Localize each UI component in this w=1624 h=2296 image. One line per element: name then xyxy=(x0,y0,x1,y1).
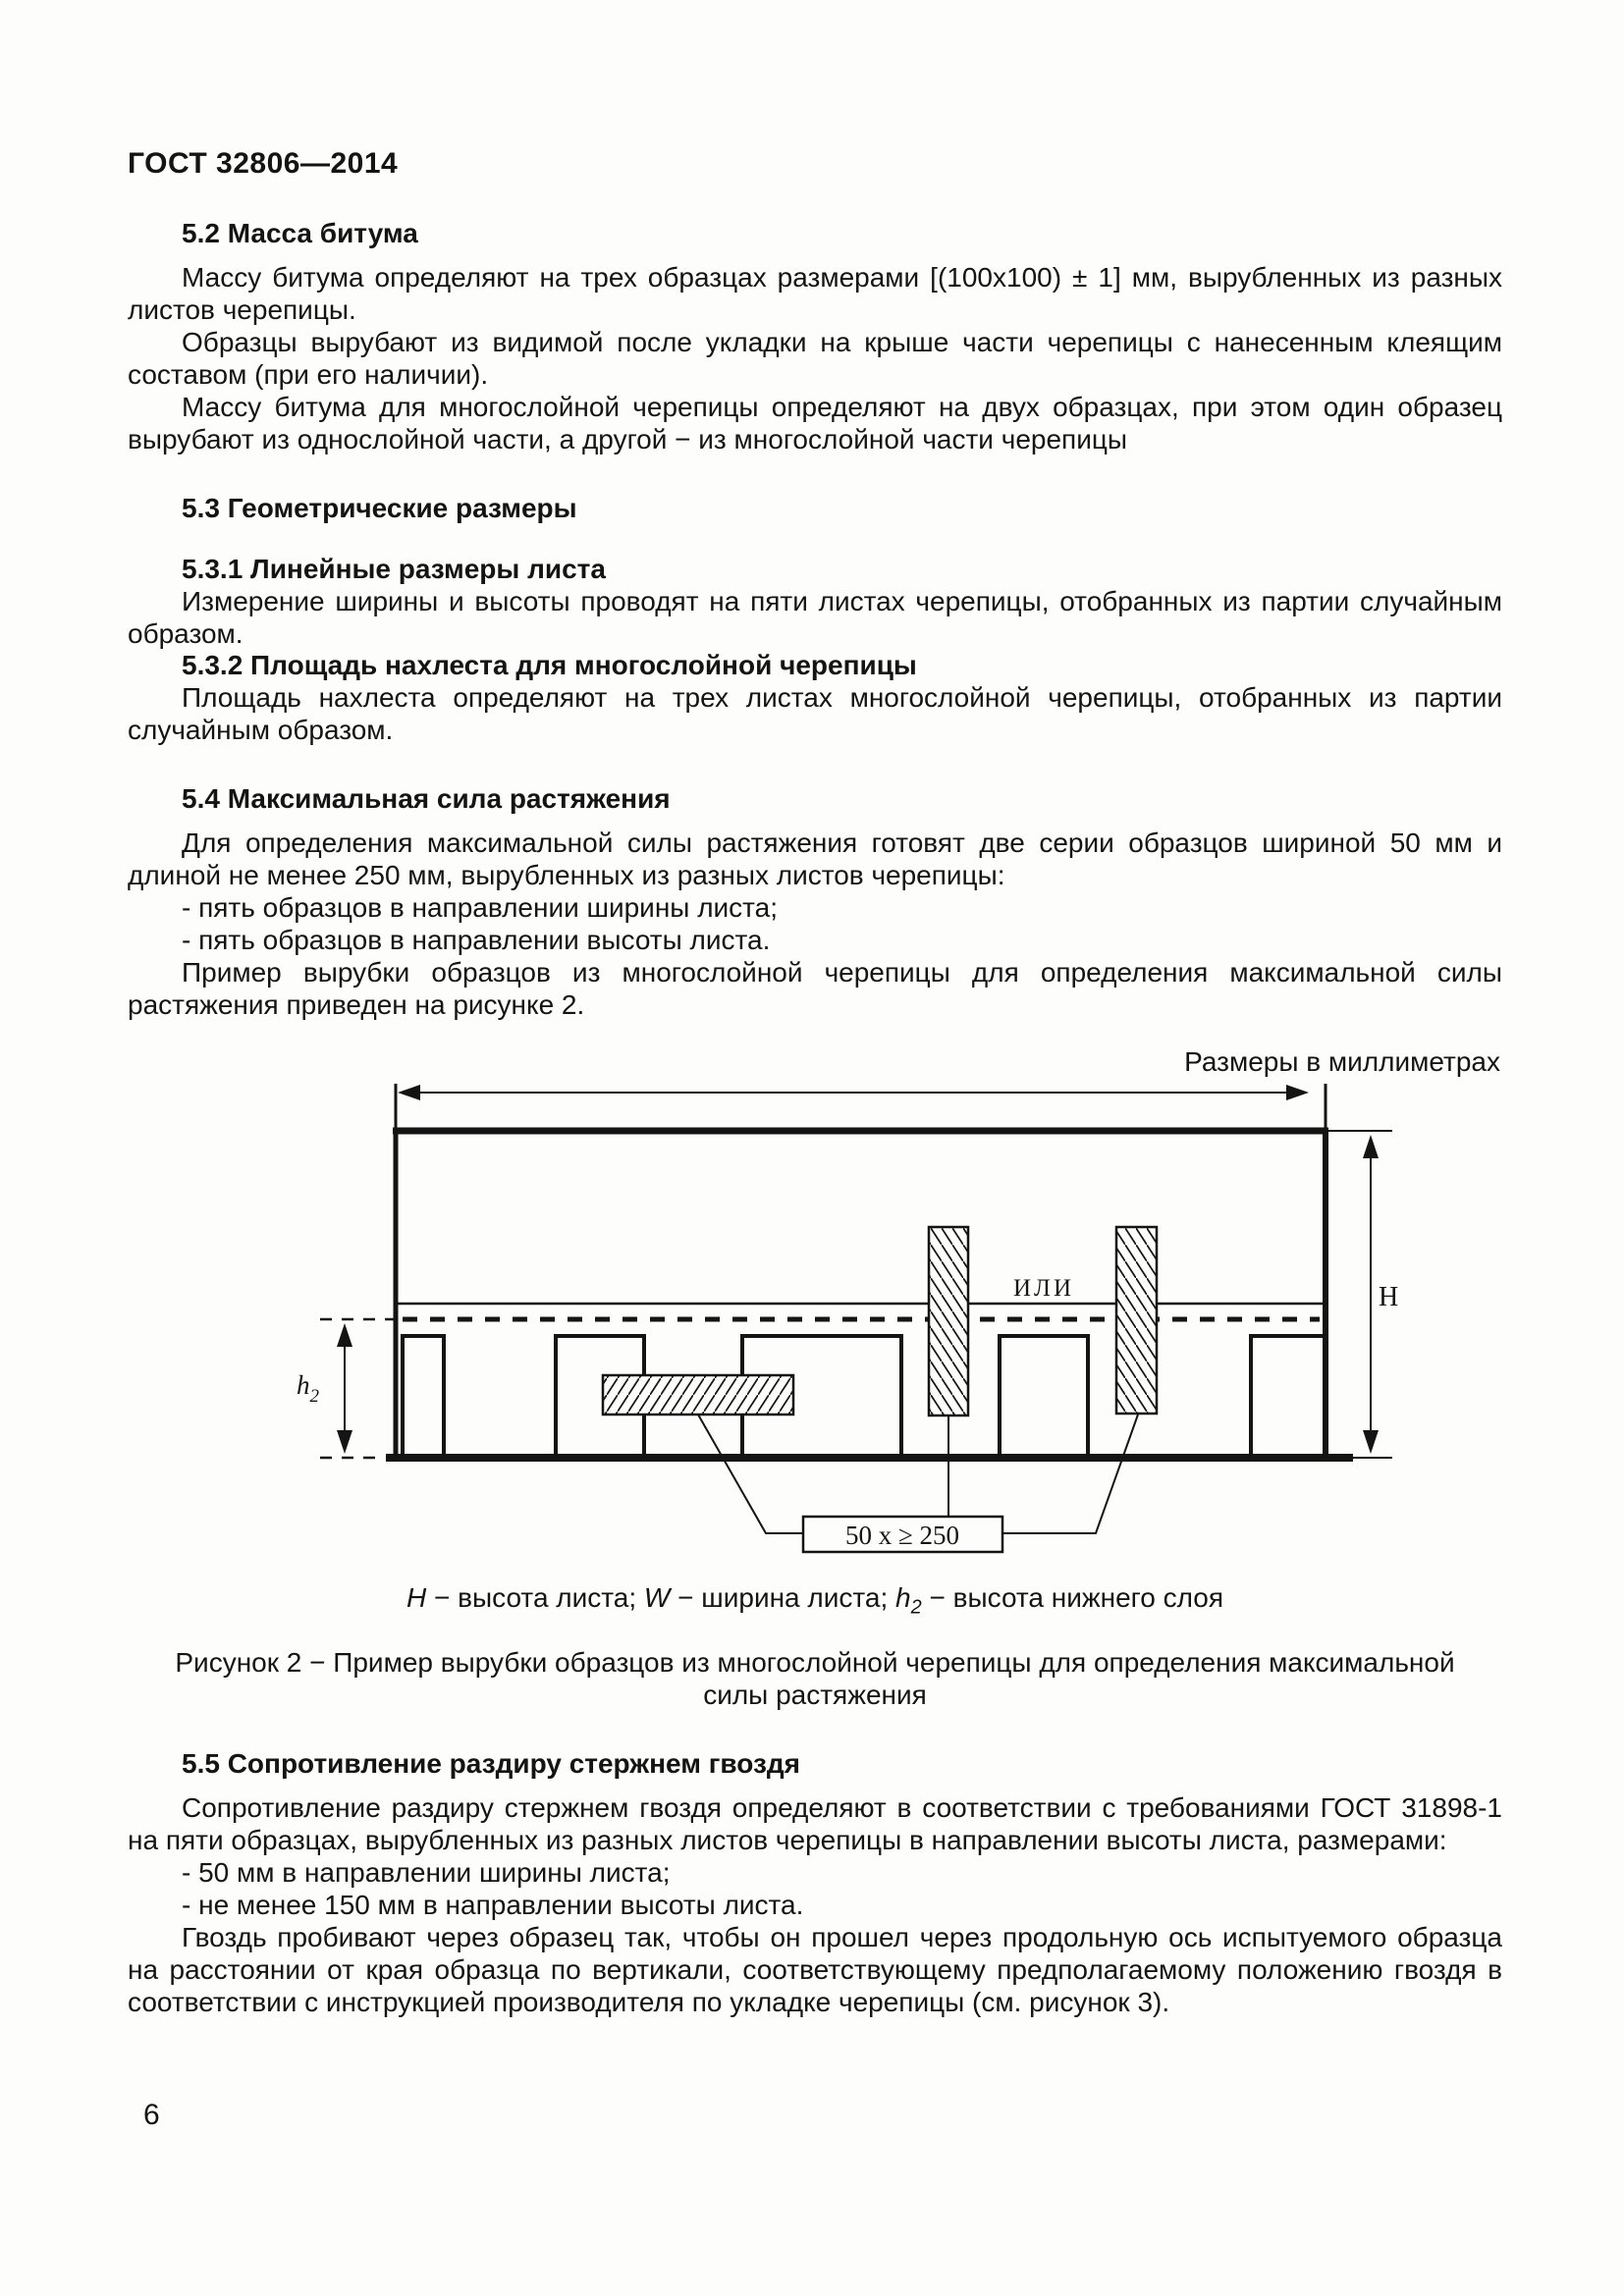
heading-5-3: 5.3 Геометрические размеры xyxy=(182,493,1502,524)
figure-caption-line1: Рисунок 2 − Пример вырубки образцов из м… xyxy=(128,1646,1502,1679)
figure-caption-line2: силы растяжения xyxy=(128,1679,1502,1711)
or-label: ИЛИ xyxy=(1013,1275,1074,1302)
paragraph-5-5-1: Сопротивление раздиру стержнем гвоздя оп… xyxy=(128,1791,1502,1856)
paragraph-5-2-1: Массу битума определяют на трех образцах… xyxy=(128,261,1502,326)
legend-text: − высота листа; xyxy=(426,1582,644,1613)
legend-var-H: H xyxy=(406,1582,426,1613)
paragraph-5-3-1: Измерение ширины и высоты проводят на пя… xyxy=(128,585,1502,650)
heading-5-3-1: 5.3.1 Линейные размеры листа xyxy=(182,554,1502,585)
heading-5-3-2: 5.3.2 Площадь нахлеста для многослойной … xyxy=(182,650,1502,681)
sheet-outline xyxy=(386,1131,1353,1462)
heading-5-4: 5.4 Максимальная сила растяжения xyxy=(182,783,1502,815)
paragraph-5-2-2: Образцы вырубают из видимой после укладк… xyxy=(128,326,1502,391)
paragraph-5-3-2: Площадь нахлеста определяют на трех лист… xyxy=(128,681,1502,746)
paragraph-5-4-2: Пример вырубки образцов из многослойной … xyxy=(128,956,1502,1021)
legend-text: − высота нижнего слоя xyxy=(922,1582,1223,1613)
figure-2: ИЛИ H h2 xyxy=(283,1078,1502,1574)
paragraph-5-5-2: Гвоздь пробивают через образец так, чтоб… xyxy=(128,1921,1502,2018)
width-dimension-arrow xyxy=(396,1084,1326,1131)
paragraph-5-2-3: Массу битума для многослойной черепицы о… xyxy=(128,391,1502,455)
sample-vertical-1 xyxy=(929,1227,968,1415)
heading-5-2: 5.2 Масса битума xyxy=(182,218,1502,249)
list-item: - не менее 150 мм в направлении высоты л… xyxy=(182,1889,1502,1921)
list-item: - пять образцов в направлении высоты лис… xyxy=(182,924,1502,956)
figure-units-note: Размеры в миллиметрах xyxy=(128,1046,1502,1078)
list-item: - пять образцов в направлении ширины лис… xyxy=(182,891,1502,924)
legend-var-h2: h2 xyxy=(895,1582,922,1613)
lower-layer-dimension-label: h2 xyxy=(297,1370,320,1407)
heading-5-5: 5.5 Сопротивление раздиру стержнем гвозд… xyxy=(182,1748,1502,1780)
figure-legend: H − высота листа; W − ширина листа; h2 −… xyxy=(128,1581,1502,1625)
sample-horizontal xyxy=(603,1375,793,1415)
figure-2-drawing: ИЛИ H h2 xyxy=(283,1078,1422,1569)
page-number: 6 xyxy=(143,2099,160,2132)
sample-size-box: 50 x ≥ 250 xyxy=(803,1517,1002,1552)
document-page: ГОСТ 32806—2014 5.2 Масса битума Массу б… xyxy=(0,0,1624,2296)
sample-vertical-2 xyxy=(1116,1227,1157,1414)
height-dimension-label: H xyxy=(1379,1282,1398,1312)
legend-text: − ширина листа; xyxy=(670,1582,895,1613)
document-code: ГОСТ 32806—2014 xyxy=(128,147,1502,181)
sample-size-label: 50 x ≥ 250 xyxy=(845,1521,959,1550)
paragraph-5-4-1: Для определения максимальной силы растяж… xyxy=(128,827,1502,891)
list-item: - 50 мм в направлении ширины листа; xyxy=(182,1856,1502,1889)
legend-var-W: W xyxy=(644,1582,670,1613)
lower-layer-dimension-arrow xyxy=(320,1319,394,1458)
tab-cutouts xyxy=(403,1336,1324,1458)
